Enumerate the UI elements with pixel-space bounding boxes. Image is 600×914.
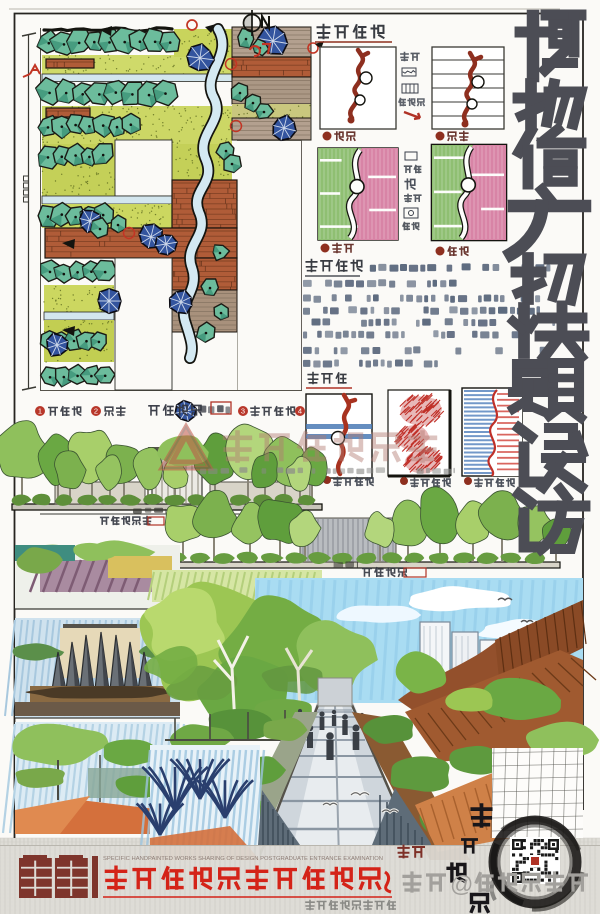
svg-text:@: @ bbox=[450, 871, 473, 897]
svg-text:1: 1 bbox=[38, 407, 42, 416]
svg-text:2: 2 bbox=[94, 407, 98, 416]
svg-text:SPECIFIC HANDPAINTED WORKS SHA: SPECIFIC HANDPAINTED WORKS SHARING OF DE… bbox=[103, 856, 383, 862]
svg-text:3: 3 bbox=[241, 407, 245, 416]
svg-text:4: 4 bbox=[298, 407, 302, 416]
